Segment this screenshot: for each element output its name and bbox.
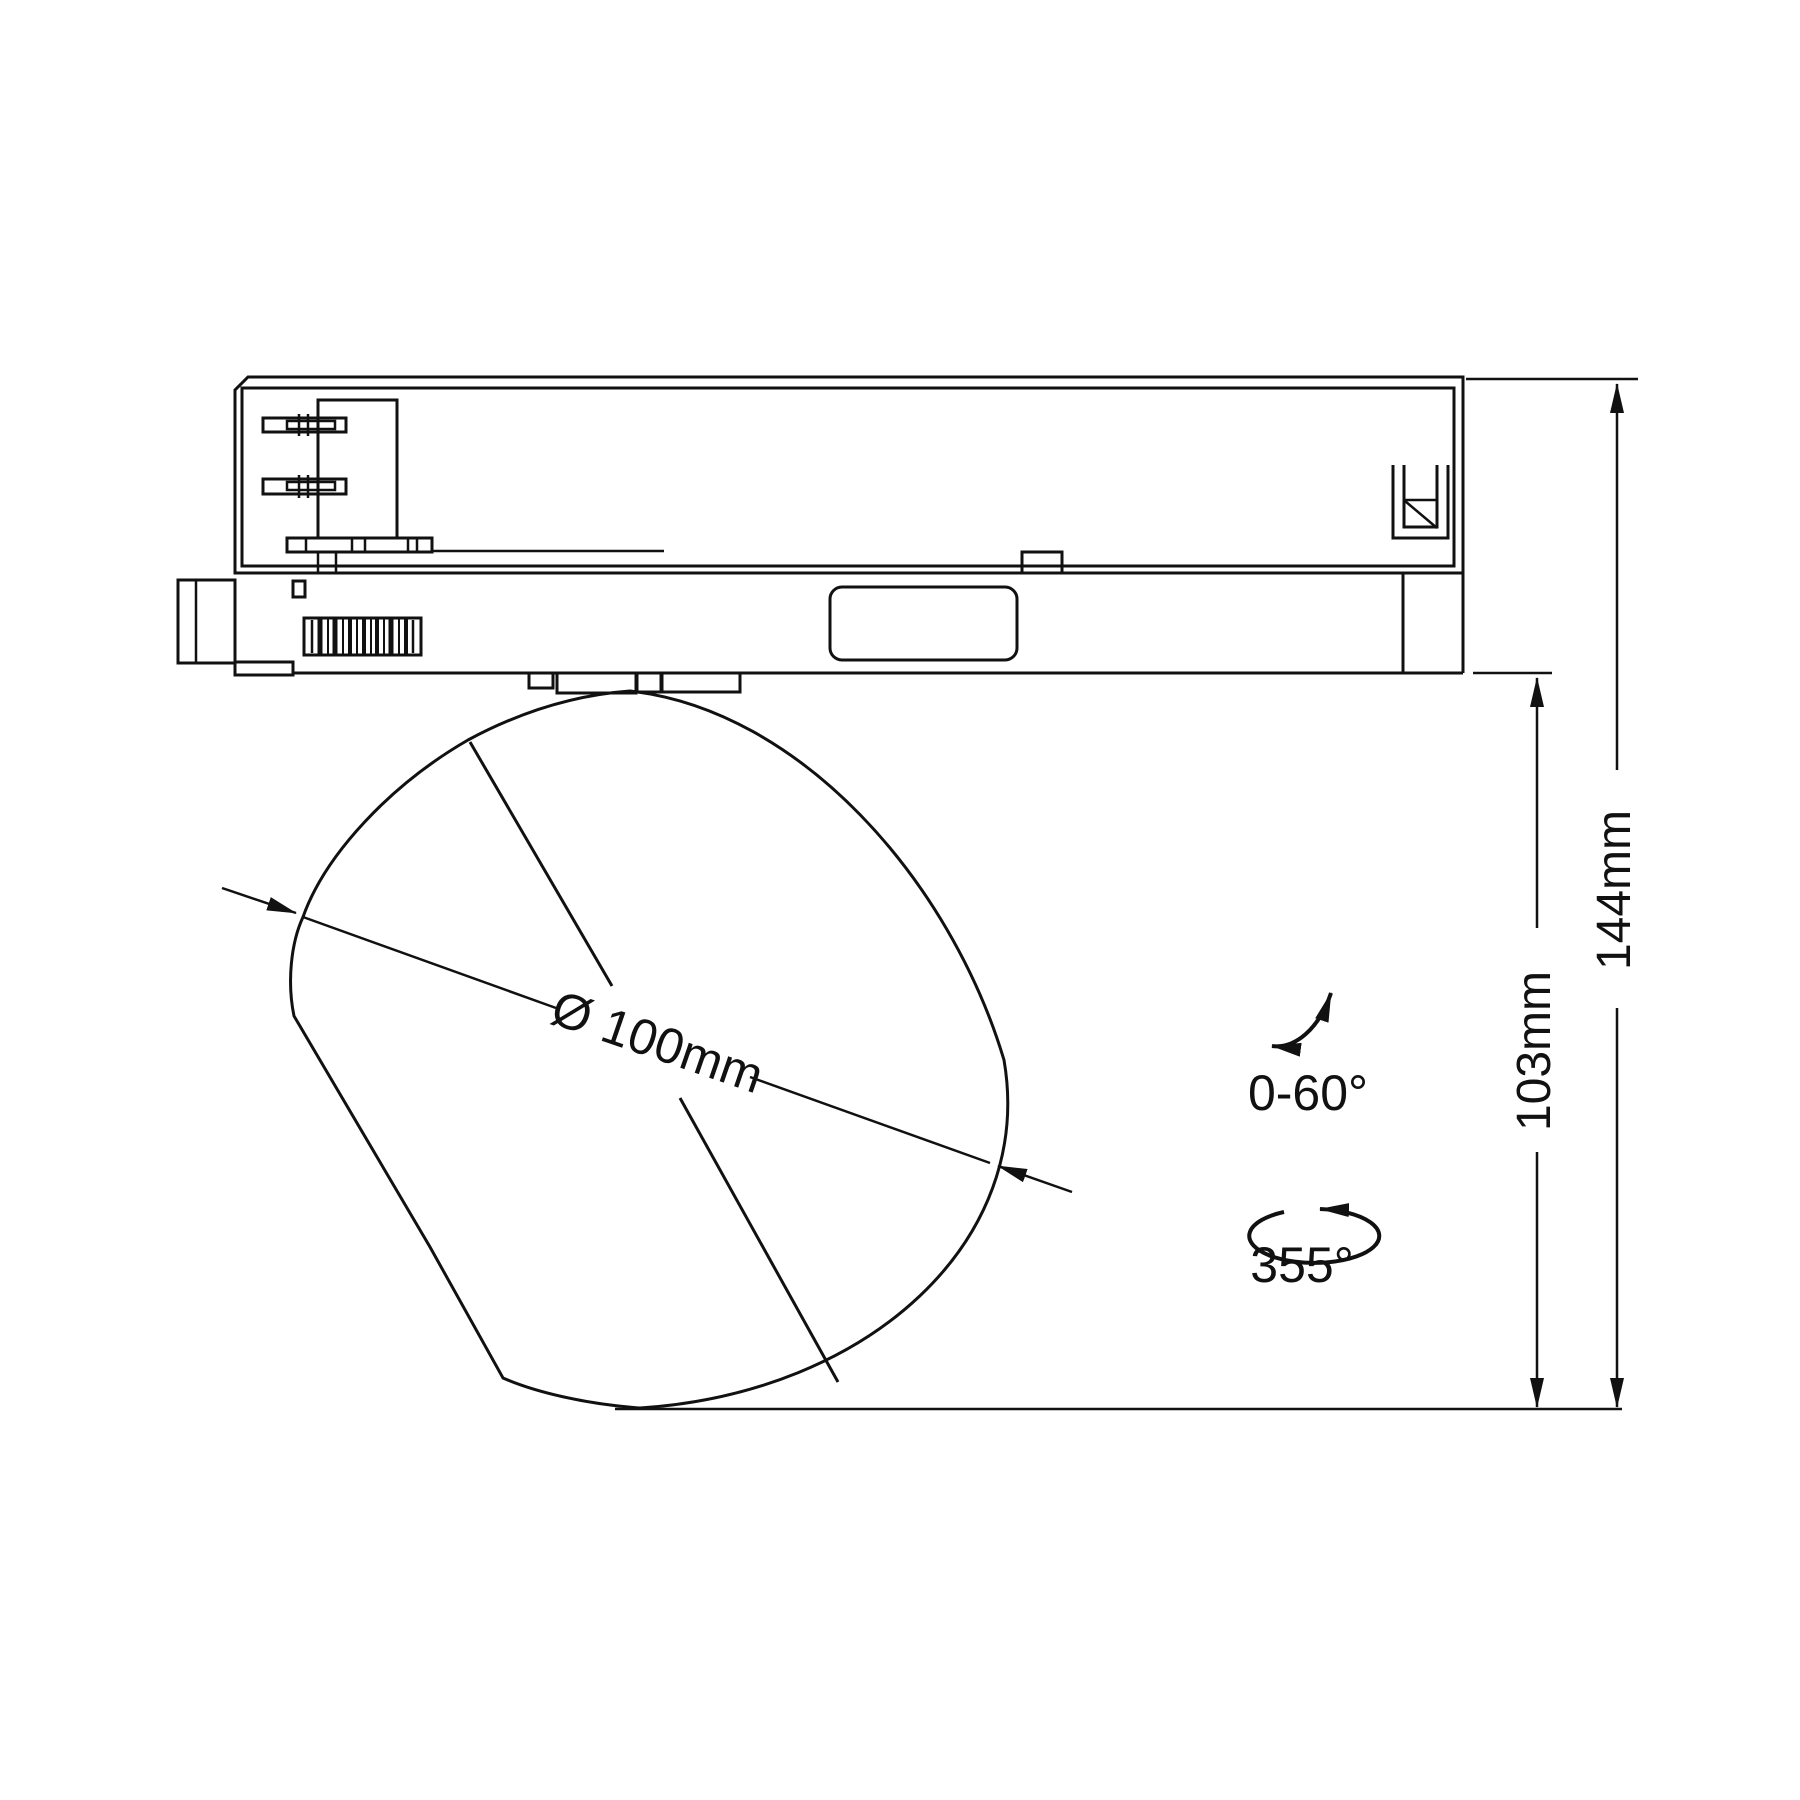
housing-floor-tab bbox=[1022, 552, 1062, 573]
dimension-144mm: 144mm bbox=[1588, 384, 1641, 1407]
diameter-line-left bbox=[303, 917, 556, 1008]
spotlight-dimension-drawing: Ø 100mm 0-60° 355° 103mm 144mm bbox=[0, 0, 1800, 1800]
mount-tab-wide-right bbox=[662, 673, 740, 692]
left-lever-block bbox=[178, 580, 305, 675]
tilt-annotation: 0-60° bbox=[1248, 993, 1368, 1121]
u-clip-inner bbox=[1404, 465, 1437, 527]
adapter-u-clip bbox=[1393, 465, 1448, 538]
track-adapter bbox=[235, 377, 1463, 573]
diameter-line-right bbox=[750, 1077, 990, 1163]
tilt-label: 0-60° bbox=[1248, 1065, 1368, 1121]
diameter-arrow-right bbox=[998, 1166, 1072, 1192]
swivel-label: 355° bbox=[1250, 1237, 1353, 1293]
label-plate bbox=[830, 587, 1017, 660]
mount-tab-middle bbox=[637, 673, 661, 692]
technical-drawing-page: Ø 100mm 0-60° 355° 103mm 144mm bbox=[0, 0, 1800, 1800]
head-chord-lower bbox=[680, 1098, 838, 1382]
swivel-annotation: 355° bbox=[1249, 1209, 1379, 1293]
contact-base-plate bbox=[287, 538, 432, 552]
head-mount-tabs bbox=[529, 673, 740, 693]
gear-body bbox=[178, 573, 1463, 693]
height-dimensions: 103mm 144mm bbox=[615, 379, 1641, 1409]
lever-foot bbox=[235, 662, 293, 675]
dim-144-label: 144mm bbox=[1588, 810, 1641, 970]
contact-prong-upper-inner bbox=[287, 421, 335, 429]
thumb-wheel bbox=[304, 618, 421, 655]
dim-103-label: 103mm bbox=[1508, 971, 1561, 1131]
contact-prong-lower-inner bbox=[287, 482, 335, 490]
thumb-wheel-knurling bbox=[320, 619, 406, 654]
dimension-103mm: 103mm bbox=[1508, 678, 1561, 1407]
diameter-dimension: Ø 100mm bbox=[222, 888, 1072, 1192]
hanging-square-tab bbox=[293, 581, 305, 597]
head-chord-upper bbox=[470, 742, 612, 986]
diameter-arrow-left bbox=[222, 888, 296, 913]
mount-tab-small bbox=[529, 673, 553, 688]
diameter-label: Ø 100mm bbox=[545, 980, 771, 1104]
tilt-arc-arrow bbox=[1272, 993, 1331, 1046]
adapter-contact-assembly bbox=[263, 400, 664, 573]
adapter-outer-shell bbox=[235, 377, 1463, 573]
u-clip-diagonal bbox=[1405, 501, 1437, 528]
lever-block bbox=[178, 580, 235, 663]
